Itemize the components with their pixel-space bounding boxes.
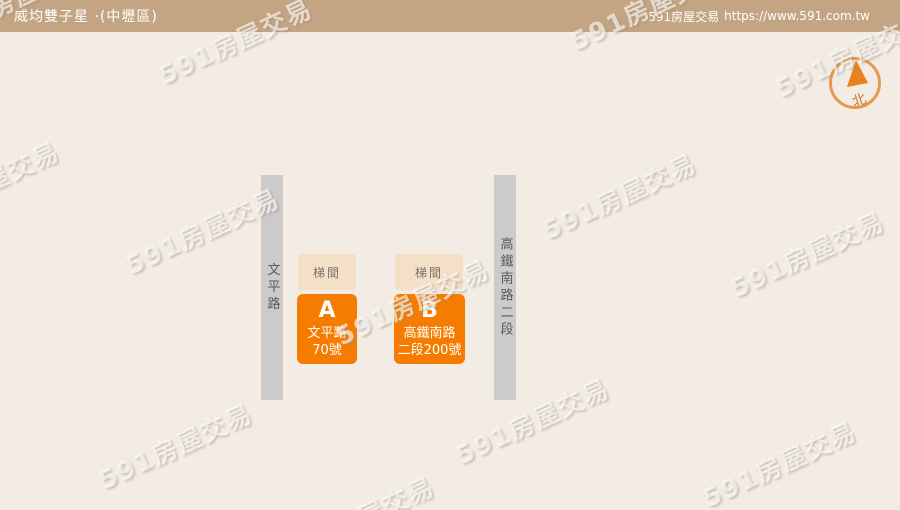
building-b[interactable]: B 高鐵南路 二段200號	[394, 294, 465, 364]
site-url: https://www.591.com.tw	[724, 9, 870, 23]
building-b-letter: B	[421, 299, 438, 323]
road-gaotie-south: 高鐵南路二段	[494, 175, 516, 400]
road-gaotie-south-label: 高鐵南路二段	[496, 237, 515, 339]
site-brand-name: 591房屋交易	[648, 8, 719, 25]
location-map: 文平路 高鐵南路二段 梯間 梯間 A 文平路 70號 B 高鐵南路 二段200號…	[0, 32, 900, 510]
stairwell-a-label: 梯間	[313, 264, 341, 281]
road-wenping: 文平路	[261, 175, 283, 400]
building-a-letter: A	[318, 299, 335, 323]
building-b-address-line1: 高鐵南路	[403, 326, 455, 342]
page-title: 威均雙子星 ·(中壢區)	[14, 6, 158, 26]
stairwell-b: 梯間	[395, 254, 463, 290]
building-b-address-line2: 二段200號	[398, 343, 462, 359]
building-a[interactable]: A 文平路 70號	[297, 294, 357, 364]
building-a-address-line2: 70號	[312, 343, 342, 359]
stairwell-b-label: 梯間	[415, 264, 443, 281]
road-wenping-label: 文平路	[263, 262, 282, 313]
site-branding: 591房屋交易 https://www.591.com.tw	[648, 8, 870, 25]
header-bar: 威均雙子星 ·(中壢區) 591房屋交易 https://www.591.com…	[0, 0, 900, 32]
building-a-address-line1: 文平路	[307, 326, 346, 342]
stairwell-a: 梯間	[298, 254, 356, 290]
compass: 北	[829, 57, 881, 109]
